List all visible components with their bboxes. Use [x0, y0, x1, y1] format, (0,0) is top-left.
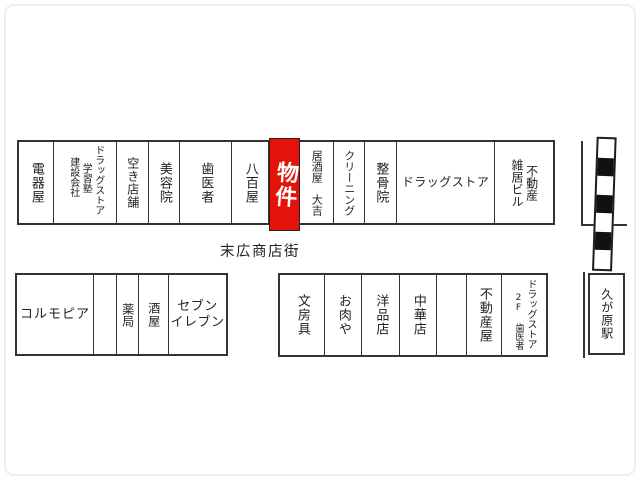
osteopathic-clinic-label: 整骨院 [374, 162, 388, 204]
izakaya-daikichi-box: 居酒屋 大吉 [300, 142, 334, 223]
railway-stripe [595, 232, 612, 251]
seven-eleven-label: セブン [177, 300, 218, 314]
electric-appliance-shop-box: 電器屋 [19, 142, 54, 223]
railway-track-icon [592, 137, 617, 272]
colmopia-clothing-store-box: コルモピア [17, 275, 94, 354]
butcher-shop-label: お肉や [336, 294, 350, 336]
osteopathic-clinic-box: 整骨院 [365, 142, 397, 223]
drugstore-2f-dentist-label: ドラッグストア [524, 279, 535, 349]
railway-stripe [598, 139, 615, 158]
railway-stripe [597, 176, 614, 195]
clothing-store-box: 洋品店 [362, 275, 400, 355]
stationery-store-label: 文房具 [295, 294, 309, 336]
top-shop-row: 電器屋ドラッグストア学習塾建設会社空き店舗美容院歯医者八百屋物件居酒屋 大吉クリ… [17, 140, 555, 225]
seven-eleven-label: イレブン [170, 316, 224, 330]
liquor-store-label: 酒屋 [147, 302, 160, 328]
street-name-label: 末広商店街 [220, 240, 300, 261]
railway-stripe [596, 195, 613, 214]
station-name-label: 久が原駅 [600, 288, 613, 340]
property-highlight-label: 物件 [271, 160, 297, 209]
real-estate-mixed-building-label: 不動産 [525, 165, 538, 201]
butcher-shop-box: お肉や [325, 275, 362, 355]
seven-eleven-box: セブンイレブン [169, 275, 226, 354]
chinese-restaurant-box: 中華店 [400, 275, 437, 355]
property-location-map: 電器屋ドラッグストア学習塾建設会社空き店舗美容院歯医者八百屋物件居酒屋 大吉クリ… [0, 0, 640, 480]
unlabeled-unit-box [94, 275, 117, 354]
drugstore-cramschool-construction-label: 学習塾 [80, 163, 91, 193]
chinese-restaurant-label: 中華店 [411, 294, 425, 336]
photo-frame [4, 4, 636, 476]
drugstore-2f-dentist-label: 2F 歯医者 [513, 293, 522, 350]
drugstore-cramschool-construction-label: 建設会社 [67, 157, 78, 197]
stationery-store-box: 文房具 [280, 275, 325, 355]
drugstore-cramschool-construction-box: ドラッグストア学習塾建設会社 [54, 142, 117, 223]
vacant-store-label: 空き店舗 [126, 157, 139, 209]
station-box: 久が原駅 [588, 273, 625, 355]
dry-cleaner-label: クリーニング [343, 150, 355, 216]
beauty-salon-label: 美容院 [157, 162, 171, 204]
drugstore-label: ドラッグストア [402, 176, 490, 189]
vacant-store-box: 空き店舗 [117, 142, 149, 223]
colmopia-clothing-store-label: コルモピア [20, 308, 90, 322]
dentist-box: 歯医者 [180, 142, 232, 223]
izakaya-daikichi-label: 居酒屋 大吉 [311, 150, 323, 216]
real-estate-mixed-building-label: 雑居ビル [510, 159, 523, 207]
station-guide-line [583, 272, 585, 358]
pharmacy-label: 薬局 [121, 303, 134, 327]
greengrocer-box: 八百屋 [232, 142, 269, 223]
electric-appliance-shop-label: 電器屋 [29, 162, 43, 204]
real-estate-agency-box: 不動産屋 [467, 275, 502, 355]
drugstore-2f-dentist-box: ドラッグストア2F 歯医者 [502, 275, 546, 355]
railway-stripe [597, 157, 614, 176]
real-estate-mixed-building-box: 不動産雑居ビル [495, 142, 553, 223]
greengrocer-label: 八百屋 [243, 162, 257, 204]
drugstore-cramschool-construction-label: ドラッグストア [92, 145, 103, 215]
liquor-store-box: 酒屋 [139, 275, 169, 354]
beauty-salon-box: 美容院 [149, 142, 180, 223]
unlabeled-unit-box [437, 275, 467, 355]
clothing-store-label: 洋品店 [374, 294, 388, 336]
real-estate-agency-label: 不動産屋 [477, 287, 491, 343]
rail-guide-line-vertical [581, 141, 583, 225]
dry-cleaner-box: クリーニング [334, 142, 365, 223]
railway-stripe [594, 250, 611, 269]
railway-stripe [595, 213, 612, 232]
drugstore-box: ドラッグストア [397, 142, 495, 223]
dentist-label: 歯医者 [199, 162, 213, 204]
pharmacy-box: 薬局 [117, 275, 139, 354]
bottom-left-shop-row: コルモピア薬局酒屋セブンイレブン [15, 273, 228, 356]
property-highlight-box: 物件 [269, 138, 300, 231]
bottom-right-shop-row: 文房具お肉や洋品店中華店不動産屋ドラッグストア2F 歯医者 [278, 273, 548, 357]
